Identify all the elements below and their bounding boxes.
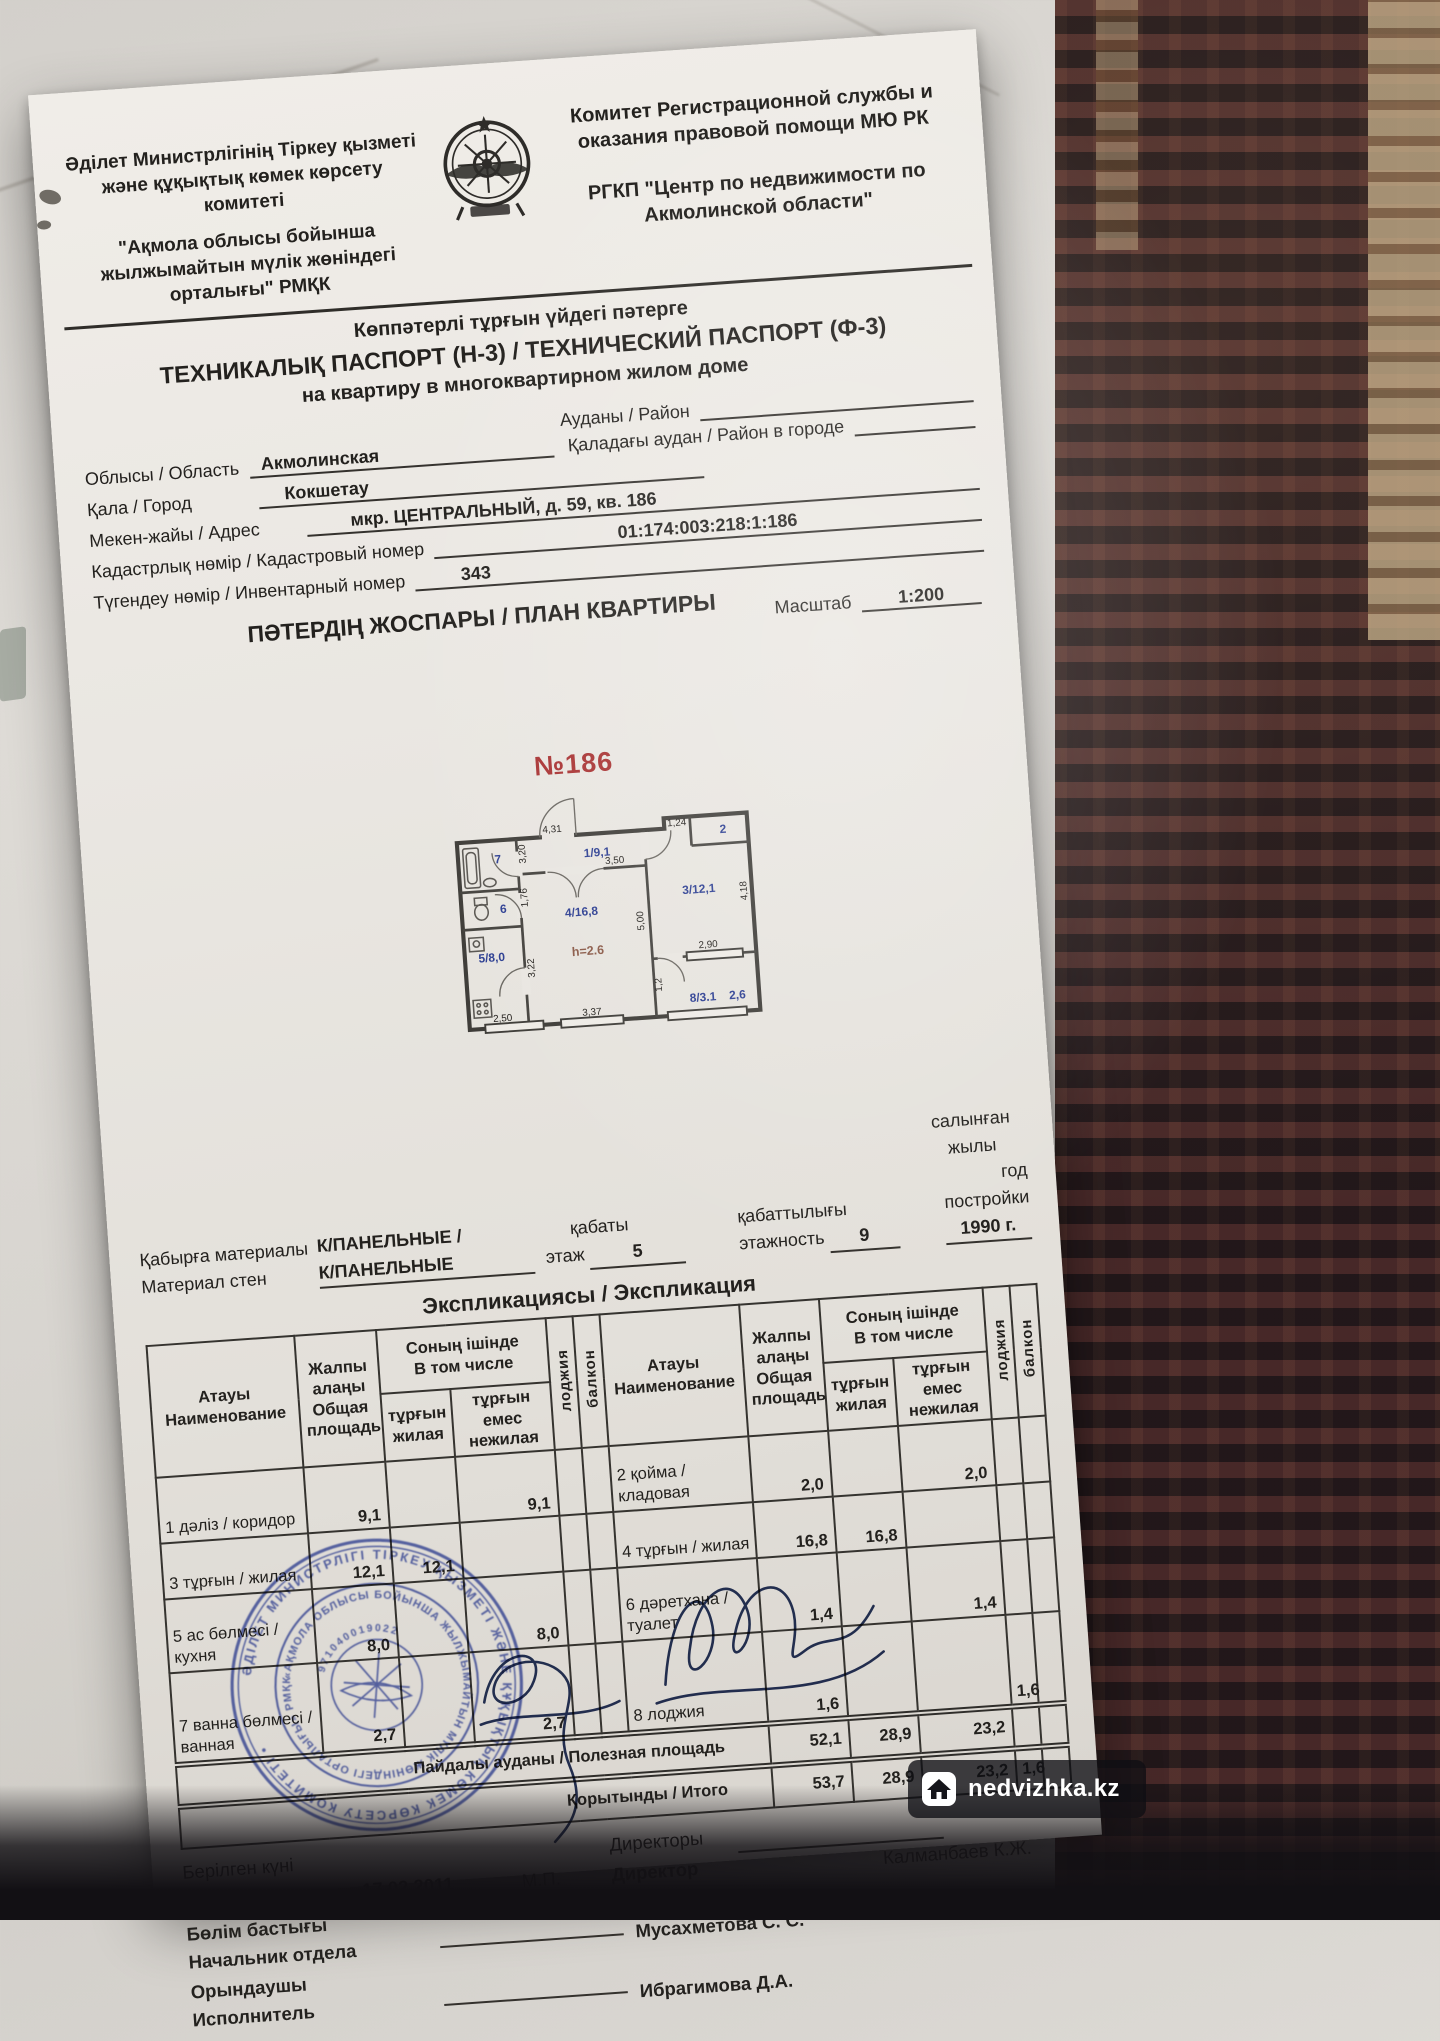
stamp-place-label: М.П. (521, 1867, 561, 1892)
dim: 4,18 (738, 880, 750, 900)
toilet-icon (474, 897, 489, 920)
committee-block-russian: Комитет Регистрационной службы и оказани… (550, 77, 960, 235)
dim: 2,90 (698, 939, 718, 951)
room-label-living: 4/16,8 (564, 904, 598, 920)
carpet-border-stripe-2 (1096, 0, 1138, 250)
area-cell (1039, 1703, 1069, 1747)
area-cell (996, 1483, 1027, 1541)
executor-signature-line (444, 1991, 628, 2006)
area-cell: 2,0 (748, 1431, 832, 1502)
carpet-border-stripe (1368, 0, 1440, 640)
document-header: Әділет Министрлігінің Тіркеу қызметі жән… (61, 77, 963, 315)
room-label-bedroom: 3/12,1 (682, 881, 716, 897)
area-cell (912, 1615, 1012, 1713)
area-cell (586, 1512, 617, 1570)
col-name: Атауы Наименование (147, 1336, 304, 1478)
room-label-loggia: 8/3.1 (689, 989, 717, 1005)
watermark-badge: nedvizhka.kz (908, 1760, 1146, 1818)
room-name: 2 қойма / кладовая (609, 1436, 753, 1512)
area-cell (828, 1426, 902, 1497)
col-nonliving: тұрғын емес нежилая (450, 1382, 555, 1457)
kitchen-sink-icon (469, 937, 484, 952)
area-cell (1019, 1415, 1051, 1483)
issue-date-label-ru: Дата выдачи (184, 1883, 304, 1913)
dim: 4,31 (542, 824, 562, 836)
year-value: 1990 г. (944, 1210, 1032, 1245)
executor-signature (454, 1622, 649, 1854)
area-cell: 9,1 (303, 1462, 389, 1534)
dim: 3,22 (526, 958, 538, 978)
area-cell: 2,0 (898, 1419, 996, 1491)
room-label-loggia-area: 2,6 (729, 987, 747, 1002)
floors-value: 9 (829, 1219, 901, 1253)
issue-date-value: 17.02.2011 (323, 1870, 492, 1906)
area-cell (559, 1514, 590, 1572)
area-cell (903, 1485, 1001, 1547)
stove-icon (473, 999, 492, 1018)
floor-value: 5 (589, 1234, 687, 1270)
area-cell: 23,2 (918, 1706, 1015, 1754)
col-total-area: Жалпы алаңы Общая площадь (294, 1330, 385, 1467)
dim: 5,00 (635, 910, 647, 930)
dim: 1,24 (667, 817, 687, 829)
dim: 3,37 (582, 1006, 602, 1018)
area-cell (1012, 1705, 1042, 1749)
kazakhstan-coat-of-arms-emblem (424, 106, 550, 234)
floor-plan-area: №186 (98, 604, 1023, 1165)
stamp-number: 971040019022 (316, 1619, 400, 1679)
col-living: тұрғын жилая (823, 1358, 898, 1431)
col-including: Соның ішінде В том числе (819, 1288, 987, 1363)
dim: 1,2 (653, 977, 665, 991)
floor-label-ru: этаж (545, 1244, 585, 1267)
area-cell: 1,4 (906, 1541, 1005, 1621)
area-cell: 53,7 (771, 1760, 854, 1807)
area-cell (385, 1457, 459, 1528)
area-cell (1027, 1537, 1059, 1613)
col-living: тұрғын жилая (380, 1389, 455, 1462)
year-label-ru: год постройки (944, 1159, 1030, 1212)
head-label-ru: Начальник отдела (188, 1940, 357, 1974)
dim: 1,76 (519, 887, 531, 907)
room-label-bath: 7 (494, 852, 502, 866)
issue-date-label-kk: Берілген күні (182, 1854, 295, 1884)
area-cell: 9,1 (455, 1450, 559, 1523)
unit-number-label: №186 (533, 746, 614, 782)
col-name: Атауы Наименование (599, 1305, 748, 1446)
area-cell (1023, 1481, 1054, 1539)
executor-label-ru: Исполнитель (192, 2001, 316, 2031)
year-label-kk: салынған жылы (930, 1102, 1026, 1162)
floor-object (0, 626, 26, 702)
head-label-kk: Бөлім бастығы (186, 1914, 328, 1946)
executor-label-kk: Орындаушы (190, 1973, 307, 2003)
ceiling-height-label: h=2.6 (571, 943, 604, 959)
room-label-kitchen: 5/8,0 (478, 950, 506, 966)
watermark-text: nedvizhka.kz (968, 1775, 1120, 1803)
executor-name: Ибрагимова Д.А. (639, 1969, 794, 2002)
dim: 3,50 (605, 855, 625, 867)
head-name: Мусахметова С. С. (635, 1908, 805, 1942)
field-region-label: Облысы / Область (84, 458, 250, 490)
director-name: Калманбаев К.Ж. (882, 1836, 1032, 1868)
room-label-closet: 2 (719, 822, 727, 836)
room-label-toilet: 6 (500, 902, 508, 916)
director-signature (630, 1519, 903, 1737)
director-label-ru: Директор (611, 1858, 699, 1886)
dim: 3,20 (517, 843, 529, 863)
col-nonliving: тұрғын емес нежилая (893, 1351, 992, 1425)
floor-plan-drawing: 1/9,1 2 3/12,1 4/16,8 5/8,0 6 7 8/3.1 2,… (438, 777, 767, 1048)
col-including: Соның ішінде В том числе (376, 1318, 550, 1394)
field-city-district-blank (853, 405, 975, 436)
dim: 2,50 (493, 1013, 513, 1025)
ministry-block-kazakh: Әділет Министрлігінің Тіркеу қызметі жән… (61, 114, 428, 315)
bathtub-icon (462, 848, 480, 889)
field-city-label: Қала / Город (86, 488, 259, 521)
col-total-area: Жалпы алаңы Общая площадь (739, 1299, 828, 1436)
technical-passport-document: Әділет Министрлігінің Тіркеу қызметі жән… (28, 29, 1102, 1901)
floors-label-ru: этажность (738, 1227, 825, 1253)
head-signature-line (440, 1933, 624, 1948)
nedvizhka-house-icon (921, 1771, 957, 1807)
svg-text:971040019022: 971040019022 (316, 1619, 400, 1679)
sink-icon (483, 878, 496, 887)
